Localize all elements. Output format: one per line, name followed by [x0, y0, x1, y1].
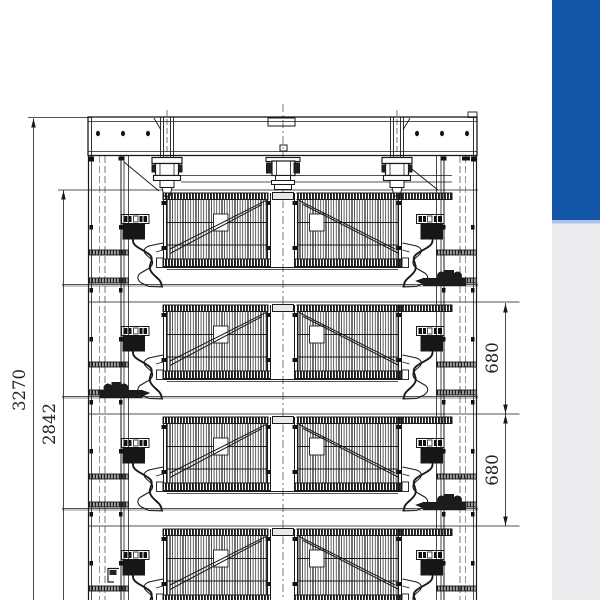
- top-beam: [88, 112, 477, 158]
- dimension-label-tier-gap-lower: 680: [483, 454, 502, 486]
- cad-elevation-drawing: 3270 2842 680 680: [0, 0, 600, 600]
- dimension-lines: [28, 118, 520, 600]
- page: 3270 2842 680 680: [0, 0, 600, 600]
- left-column: [88, 156, 129, 600]
- dimension-label-overall-height: 3270: [10, 369, 29, 411]
- center-trolley: [266, 158, 300, 190]
- dimension-label-tier-gap-upper: 680: [483, 342, 502, 374]
- blue-panel-bottom-edge: [552, 220, 600, 224]
- left-angle-bracket: [108, 569, 119, 583]
- beam-holes: [96, 131, 469, 136]
- blue-side-panel: [552, 0, 600, 220]
- dimension-label-frame-height: 2842: [40, 403, 59, 445]
- gray-side-panel: [552, 224, 600, 600]
